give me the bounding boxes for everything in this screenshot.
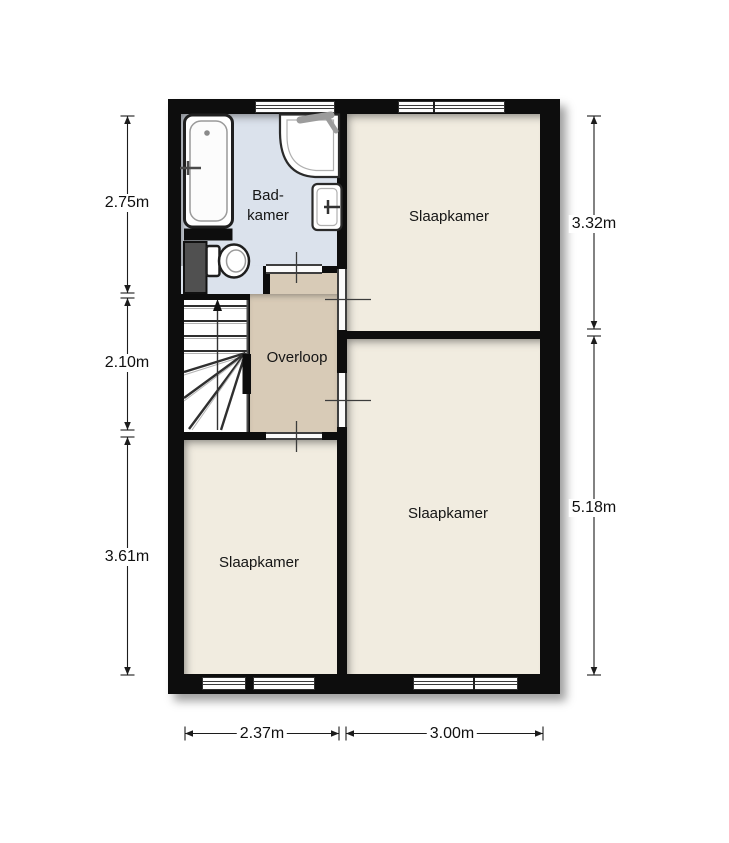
room-floor-badkamer-nook	[181, 266, 263, 294]
window-top-bathroom	[255, 101, 335, 113]
dim-label-left-top: 2.75m	[102, 194, 152, 212]
window-top-bedroom	[398, 101, 505, 113]
dim-label-right-bottom: 5.18m	[569, 499, 619, 517]
dim-label-bottom-left: 2.37m	[237, 725, 287, 743]
dim-label-left-bottom: 3.61m	[102, 548, 152, 566]
window-bottom-right	[413, 677, 518, 690]
room-label-overloop: Overloop	[267, 348, 328, 368]
room-label-slaapkamer-top-right: Slaapkamer	[409, 207, 489, 227]
dim-label-right-top: 3.32m	[569, 215, 619, 233]
room-label-slaapkamer-bottom-left: Slaapkamer	[219, 553, 299, 573]
door-slaapkamer-bottom-left	[266, 432, 322, 440]
dim-label-bottom-right: 3.00m	[427, 725, 477, 743]
window-bottom-left-b	[253, 677, 315, 690]
window-bottom-left-a	[202, 677, 246, 690]
room-floor-overloop-upper	[270, 273, 337, 294]
dimension-line-right	[587, 116, 601, 675]
window-mullion	[433, 101, 435, 113]
door-slaapkamer-top-right	[337, 269, 347, 330]
room-floor-stairwell	[184, 300, 247, 432]
window-mullion	[473, 677, 475, 690]
room-label-line: kamer	[247, 206, 289, 226]
door-slaapkamer-bottom-right	[337, 373, 347, 427]
room-label-slaapkamer-bottom-right: Slaapkamer	[408, 504, 488, 524]
door-badkamer	[266, 264, 322, 274]
floorplan-canvas: Bad- kamer Slaapkamer Overloop Slaapkame…	[0, 0, 729, 843]
dim-label-left-middle: 2.10m	[102, 354, 152, 372]
room-label-line: Bad-	[247, 186, 289, 206]
room-label-badkamer: Bad- kamer	[247, 186, 289, 226]
